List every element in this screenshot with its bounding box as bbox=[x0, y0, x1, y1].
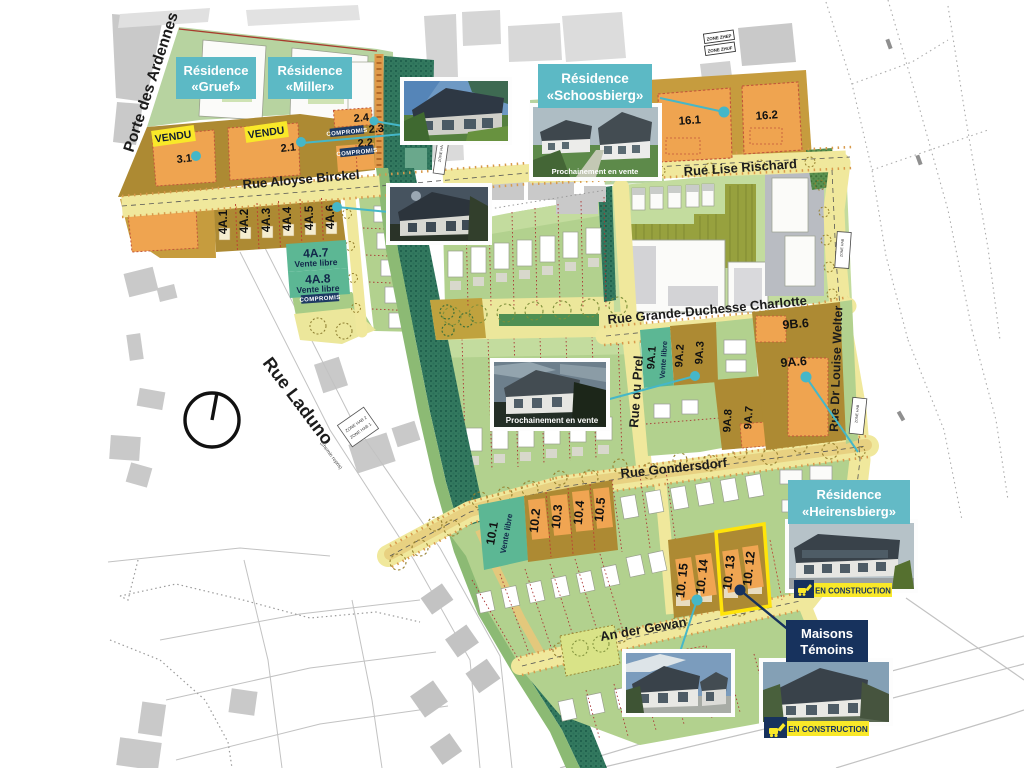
svg-text:Résidence: Résidence bbox=[561, 71, 629, 86]
svg-text:«Schoosbierg»: «Schoosbierg» bbox=[547, 88, 644, 103]
svg-text:EN CONSTRUCTION: EN CONSTRUCTION bbox=[815, 587, 891, 596]
svg-text:4A.4: 4A.4 bbox=[282, 206, 294, 231]
svg-text:Résidence: Résidence bbox=[183, 63, 248, 78]
svg-text:16.2: 16.2 bbox=[755, 109, 778, 123]
svg-text:«Gruef»: «Gruef» bbox=[191, 79, 240, 94]
svg-text:9A.8: 9A.8 bbox=[721, 409, 735, 433]
svg-text:10.5: 10.5 bbox=[592, 497, 608, 523]
svg-text:Résidence: Résidence bbox=[816, 487, 881, 502]
svg-text:«Heirensbierg»: «Heirensbierg» bbox=[802, 504, 896, 519]
svg-text:2.1: 2.1 bbox=[280, 141, 296, 155]
svg-text:10.2: 10.2 bbox=[527, 508, 543, 534]
svg-text:Résidence: Résidence bbox=[277, 63, 342, 78]
svg-text:9A.7: 9A.7 bbox=[742, 406, 756, 430]
svg-text:4A.2: 4A.2 bbox=[239, 209, 251, 233]
svg-text:3.1: 3.1 bbox=[176, 152, 192, 166]
svg-text:9A.2: 9A.2 bbox=[673, 344, 687, 368]
svg-text:2.4: 2.4 bbox=[353, 112, 370, 125]
svg-text:9A.6: 9A.6 bbox=[780, 354, 808, 370]
svg-text:10.3: 10.3 bbox=[549, 504, 565, 530]
svg-text:4A.5: 4A.5 bbox=[304, 205, 316, 230]
svg-text:Maisons: Maisons bbox=[801, 626, 853, 641]
svg-text:Prochainement en vente: Prochainement en vente bbox=[506, 416, 599, 425]
svg-text:4A.3: 4A.3 bbox=[261, 208, 273, 232]
svg-text:EN CONSTRUCTION: EN CONSTRUCTION bbox=[788, 725, 868, 734]
svg-text:10.4: 10.4 bbox=[571, 500, 587, 526]
svg-text:9B.6: 9B.6 bbox=[782, 316, 810, 332]
svg-text:4A.1: 4A.1 bbox=[218, 209, 230, 234]
svg-text:9A.3: 9A.3 bbox=[693, 341, 707, 365]
svg-text:«Miller»: «Miller» bbox=[286, 79, 334, 94]
svg-text:16.1: 16.1 bbox=[678, 114, 702, 128]
svg-text:Prochainement en vente: Prochainement en vente bbox=[552, 167, 639, 176]
svg-text:9A.1: 9A.1 bbox=[645, 346, 659, 370]
svg-text:Témoins: Témoins bbox=[800, 642, 853, 657]
